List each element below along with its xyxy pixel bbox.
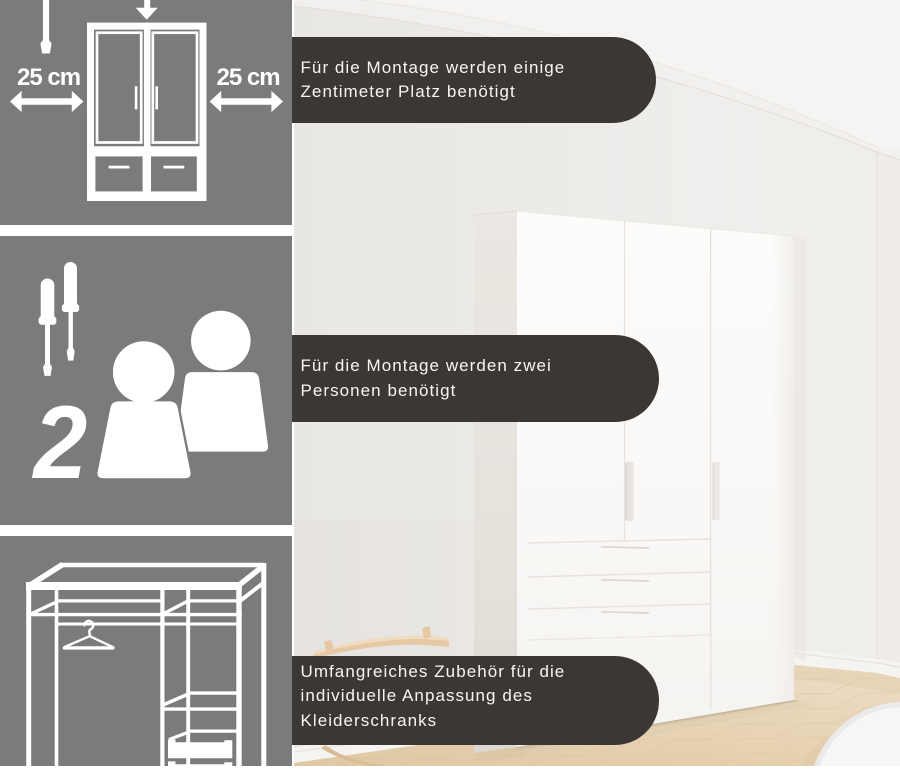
- svg-text:2: 2: [32, 385, 88, 501]
- svg-text:25 cm: 25 cm: [17, 64, 80, 91]
- svg-text:25 cm: 25 cm: [217, 64, 280, 91]
